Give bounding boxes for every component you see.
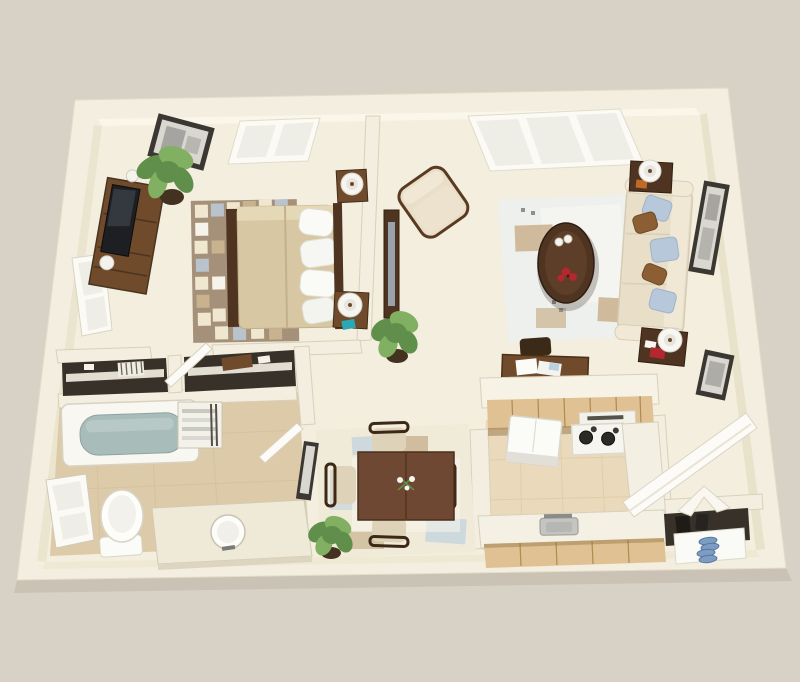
console-table: [384, 210, 399, 318]
toilet: [99, 490, 143, 557]
bedroom-top-window: [228, 118, 320, 164]
table-runner: [388, 222, 395, 306]
nightstand-with-lamp-top: [336, 169, 368, 203]
burner: [579, 431, 592, 444]
coat-closet: [664, 508, 750, 564]
vanity-with-round-sink: [152, 500, 312, 570]
slatted-item: [118, 361, 145, 377]
hanging-clothes: [675, 515, 691, 534]
closet-a-item: [84, 364, 94, 370]
living-room-window: [468, 109, 644, 171]
double-bed: [226, 203, 344, 331]
dining-area: [296, 422, 476, 559]
nightstand-with-lamp-bottom: [333, 291, 369, 330]
towel-shelf: [178, 402, 222, 448]
burner: [601, 432, 614, 445]
end-table-with-lamp-top: [629, 160, 673, 193]
refrigerator: [506, 416, 563, 467]
sofa: [615, 177, 694, 343]
desk-chair: [519, 337, 551, 357]
faucet: [544, 514, 572, 518]
dining-table: [358, 452, 454, 520]
white-cups: [555, 238, 563, 246]
apartment: [14, 88, 792, 593]
floorplan-render: [0, 0, 800, 682]
end-table-with-lamp-bottom: [638, 328, 687, 367]
